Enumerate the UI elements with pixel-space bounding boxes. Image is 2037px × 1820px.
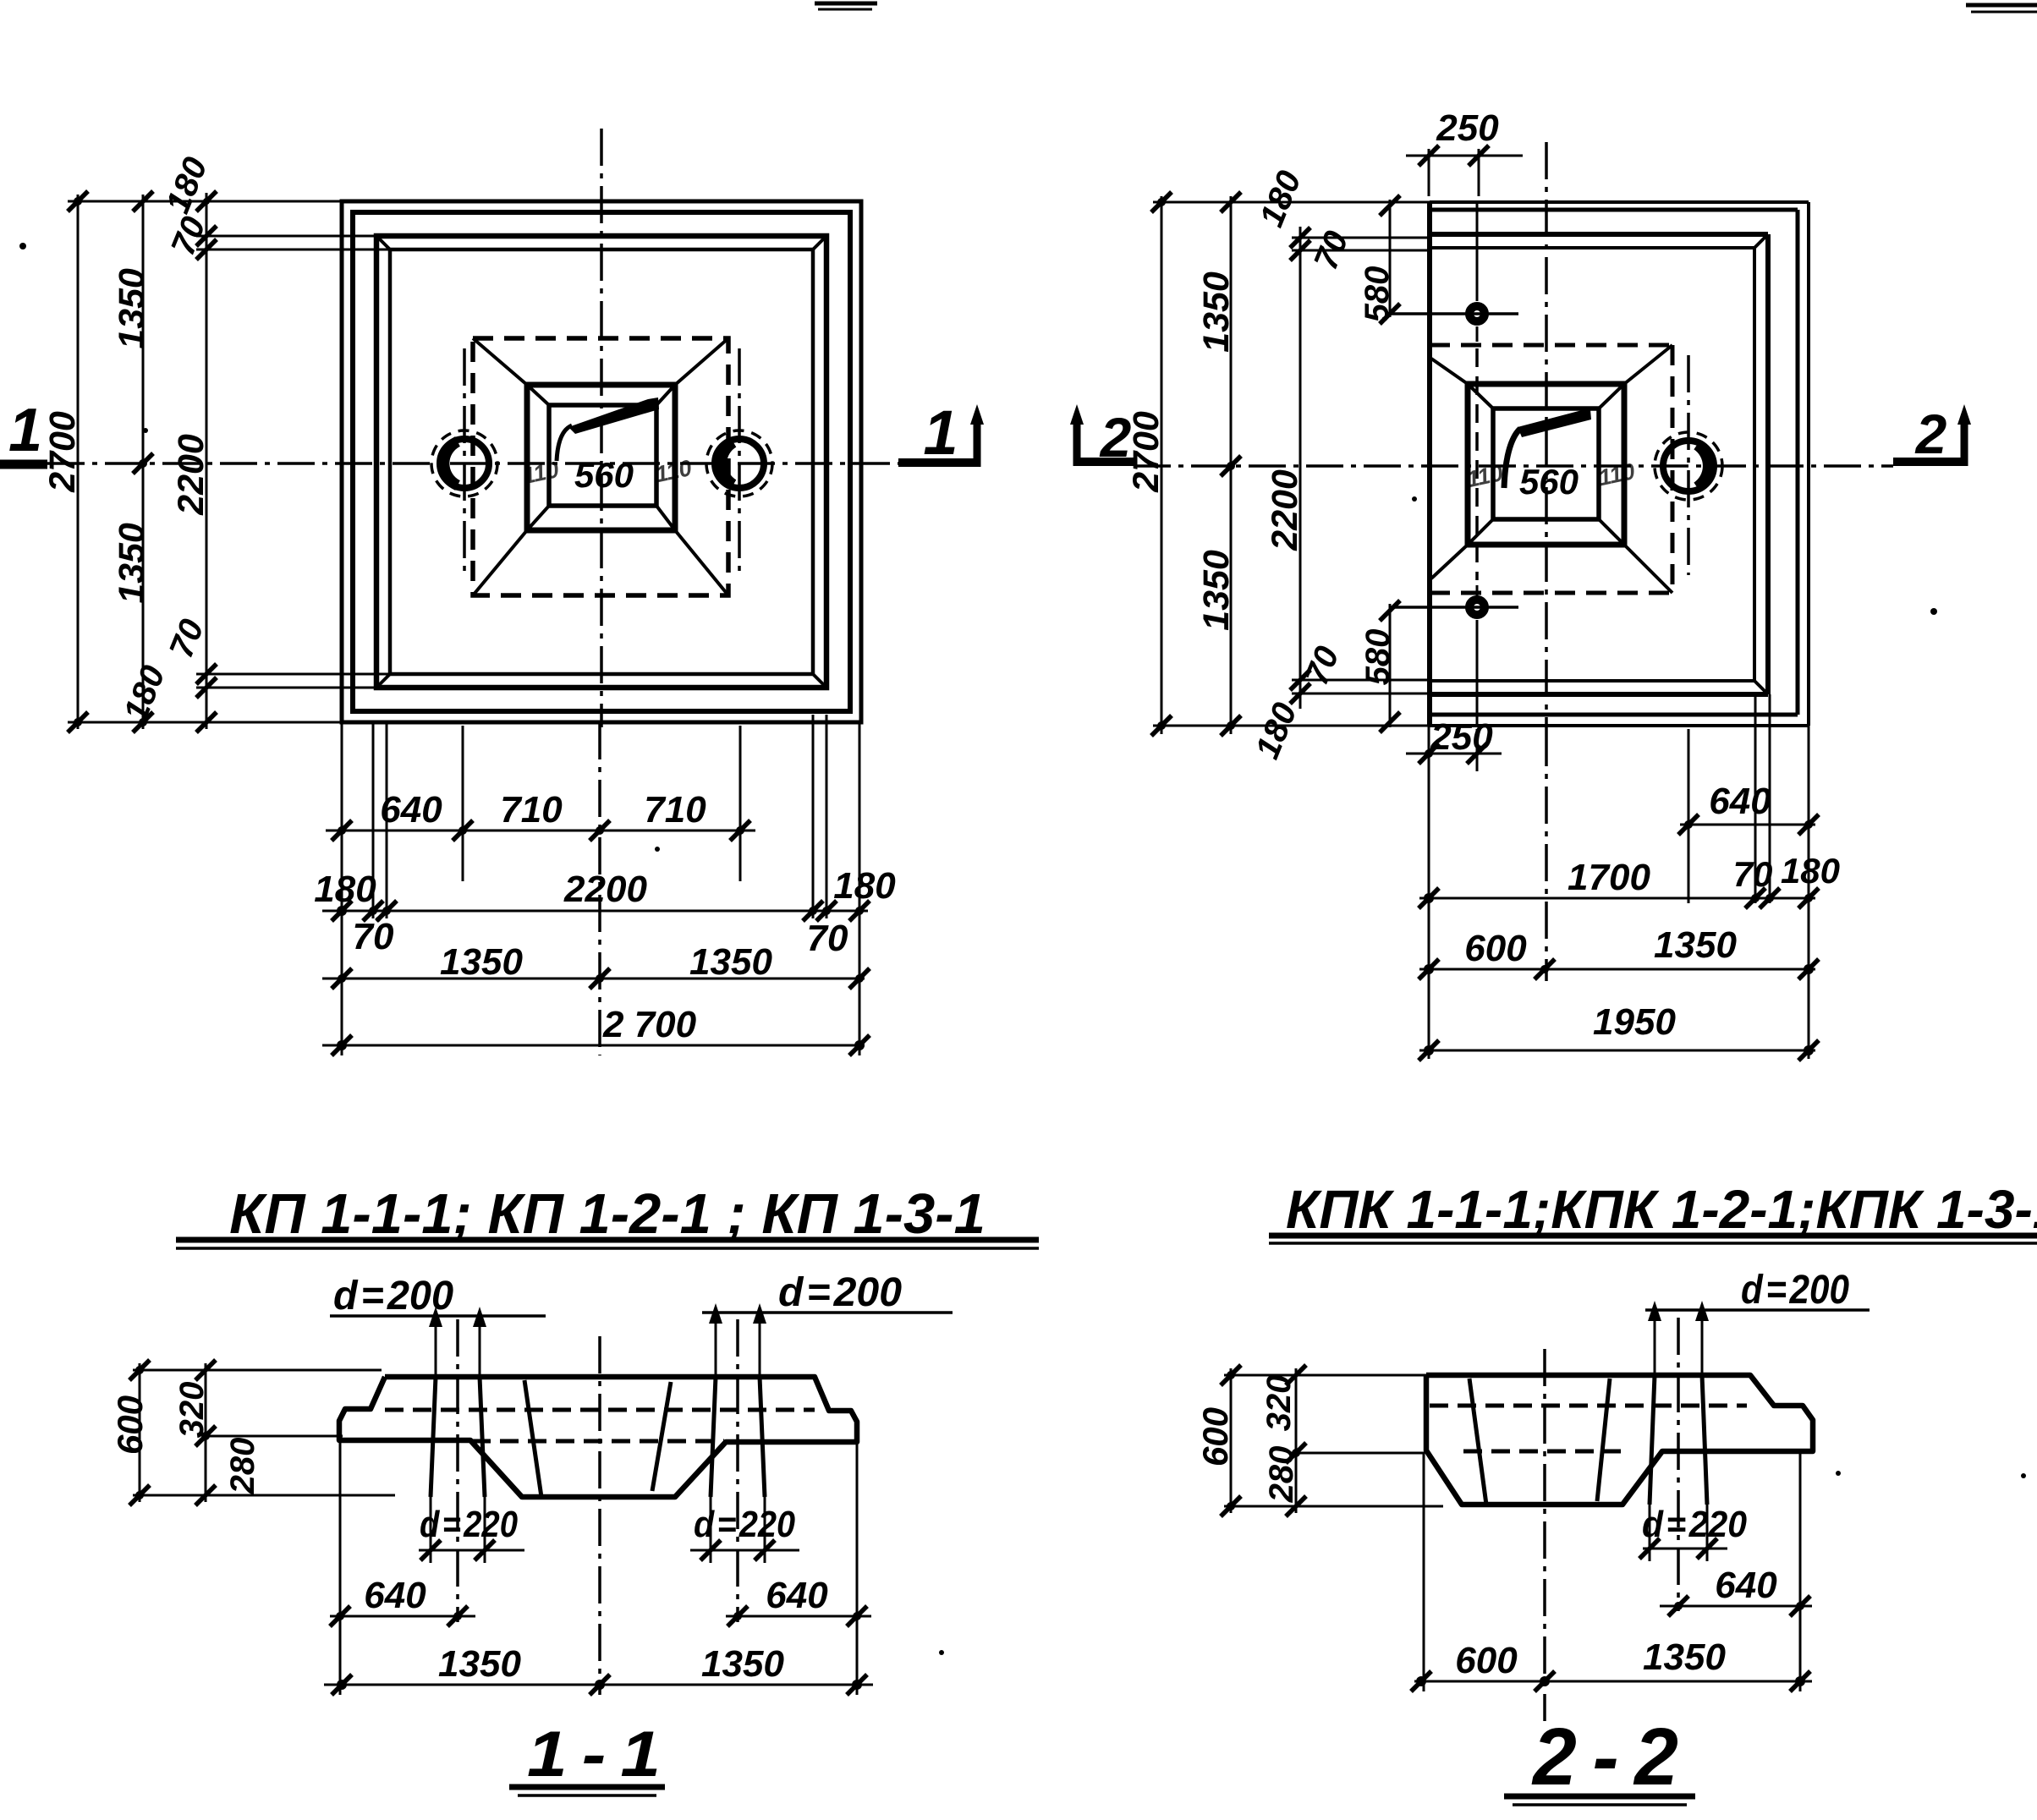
svg-text:d = 220: d = 220 — [420, 1504, 518, 1545]
svg-text:250: 250 — [1436, 107, 1499, 149]
svg-text:640: 640 — [364, 1575, 426, 1616]
svg-text:710: 710 — [644, 789, 706, 831]
svg-text:1350: 1350 — [112, 523, 152, 604]
svg-text:d = 220: d = 220 — [694, 1504, 795, 1545]
svg-text:280: 280 — [224, 1438, 261, 1495]
svg-text:2200: 2200 — [563, 869, 647, 910]
svg-text:1350: 1350 — [689, 941, 772, 983]
svg-text:320: 320 — [173, 1382, 211, 1439]
svg-text:2200: 2200 — [1265, 469, 1305, 551]
svg-text:580: 580 — [1359, 266, 1396, 323]
svg-text:1700: 1700 — [1568, 857, 1650, 898]
svg-text:1350: 1350 — [112, 268, 152, 349]
svg-text:70: 70 — [353, 916, 394, 957]
svg-text:560: 560 — [574, 455, 634, 495]
svg-text:640: 640 — [766, 1575, 828, 1616]
svg-text:1: 1 — [923, 397, 958, 468]
svg-text:d = 200: d = 200 — [1741, 1268, 1849, 1313]
svg-text:580: 580 — [1359, 629, 1397, 686]
svg-text:2 - 2: 2 - 2 — [1531, 1712, 1678, 1802]
svg-text:250: 250 — [1430, 716, 1493, 758]
svg-text:1350: 1350 — [440, 941, 523, 983]
svg-text:70: 70 — [1733, 854, 1773, 894]
svg-text:1350: 1350 — [1196, 271, 1237, 353]
svg-text:640: 640 — [1709, 781, 1771, 822]
svg-text:640: 640 — [380, 789, 442, 831]
svg-text:180: 180 — [833, 865, 896, 907]
svg-text:1: 1 — [8, 397, 42, 464]
svg-text:2 700: 2 700 — [602, 1004, 697, 1045]
svg-text:2: 2 — [1914, 403, 1947, 465]
svg-text:d = 200: d = 200 — [778, 1270, 902, 1315]
svg-text:1 - 1: 1 - 1 — [527, 1719, 661, 1790]
svg-text:180: 180 — [314, 869, 376, 910]
svg-text:640: 640 — [1715, 1565, 1777, 1606]
svg-text:2700: 2700 — [1126, 411, 1167, 493]
svg-text:1350: 1350 — [1196, 550, 1237, 631]
svg-text:2200: 2200 — [171, 434, 211, 516]
svg-text:320: 320 — [1260, 1375, 1298, 1432]
svg-text:70: 70 — [807, 918, 848, 959]
svg-text:1950: 1950 — [1593, 1001, 1676, 1043]
svg-text:180: 180 — [1781, 851, 1840, 891]
svg-text:2700: 2700 — [42, 411, 83, 493]
svg-text:КПК 1-1-1;КПК 1-2-1;КПК 1-3-1: КПК 1-1-1;КПК 1-2-1;КПК 1-3-1 — [1286, 1179, 2037, 1240]
svg-text:1350: 1350 — [1643, 1636, 1726, 1678]
svg-text:d = 200: d = 200 — [333, 1274, 453, 1318]
svg-text:1350: 1350 — [1654, 924, 1737, 966]
svg-text:280: 280 — [1263, 1446, 1300, 1504]
svg-text:600: 600 — [1195, 1407, 1235, 1466]
svg-text:d = 220: d = 220 — [1642, 1504, 1747, 1545]
svg-text:600: 600 — [1455, 1640, 1518, 1681]
svg-text:1350: 1350 — [701, 1643, 784, 1685]
svg-text:1350: 1350 — [438, 1643, 521, 1685]
svg-text:600: 600 — [1464, 928, 1527, 969]
svg-text:710: 710 — [500, 789, 563, 831]
svg-text:КП 1-1-1; КП 1-2-1 ; КП 1-3-1: КП 1-1-1; КП 1-2-1 ; КП 1-3-1 — [229, 1182, 986, 1246]
svg-text:600: 600 — [110, 1395, 150, 1455]
svg-text:560: 560 — [1519, 462, 1579, 502]
